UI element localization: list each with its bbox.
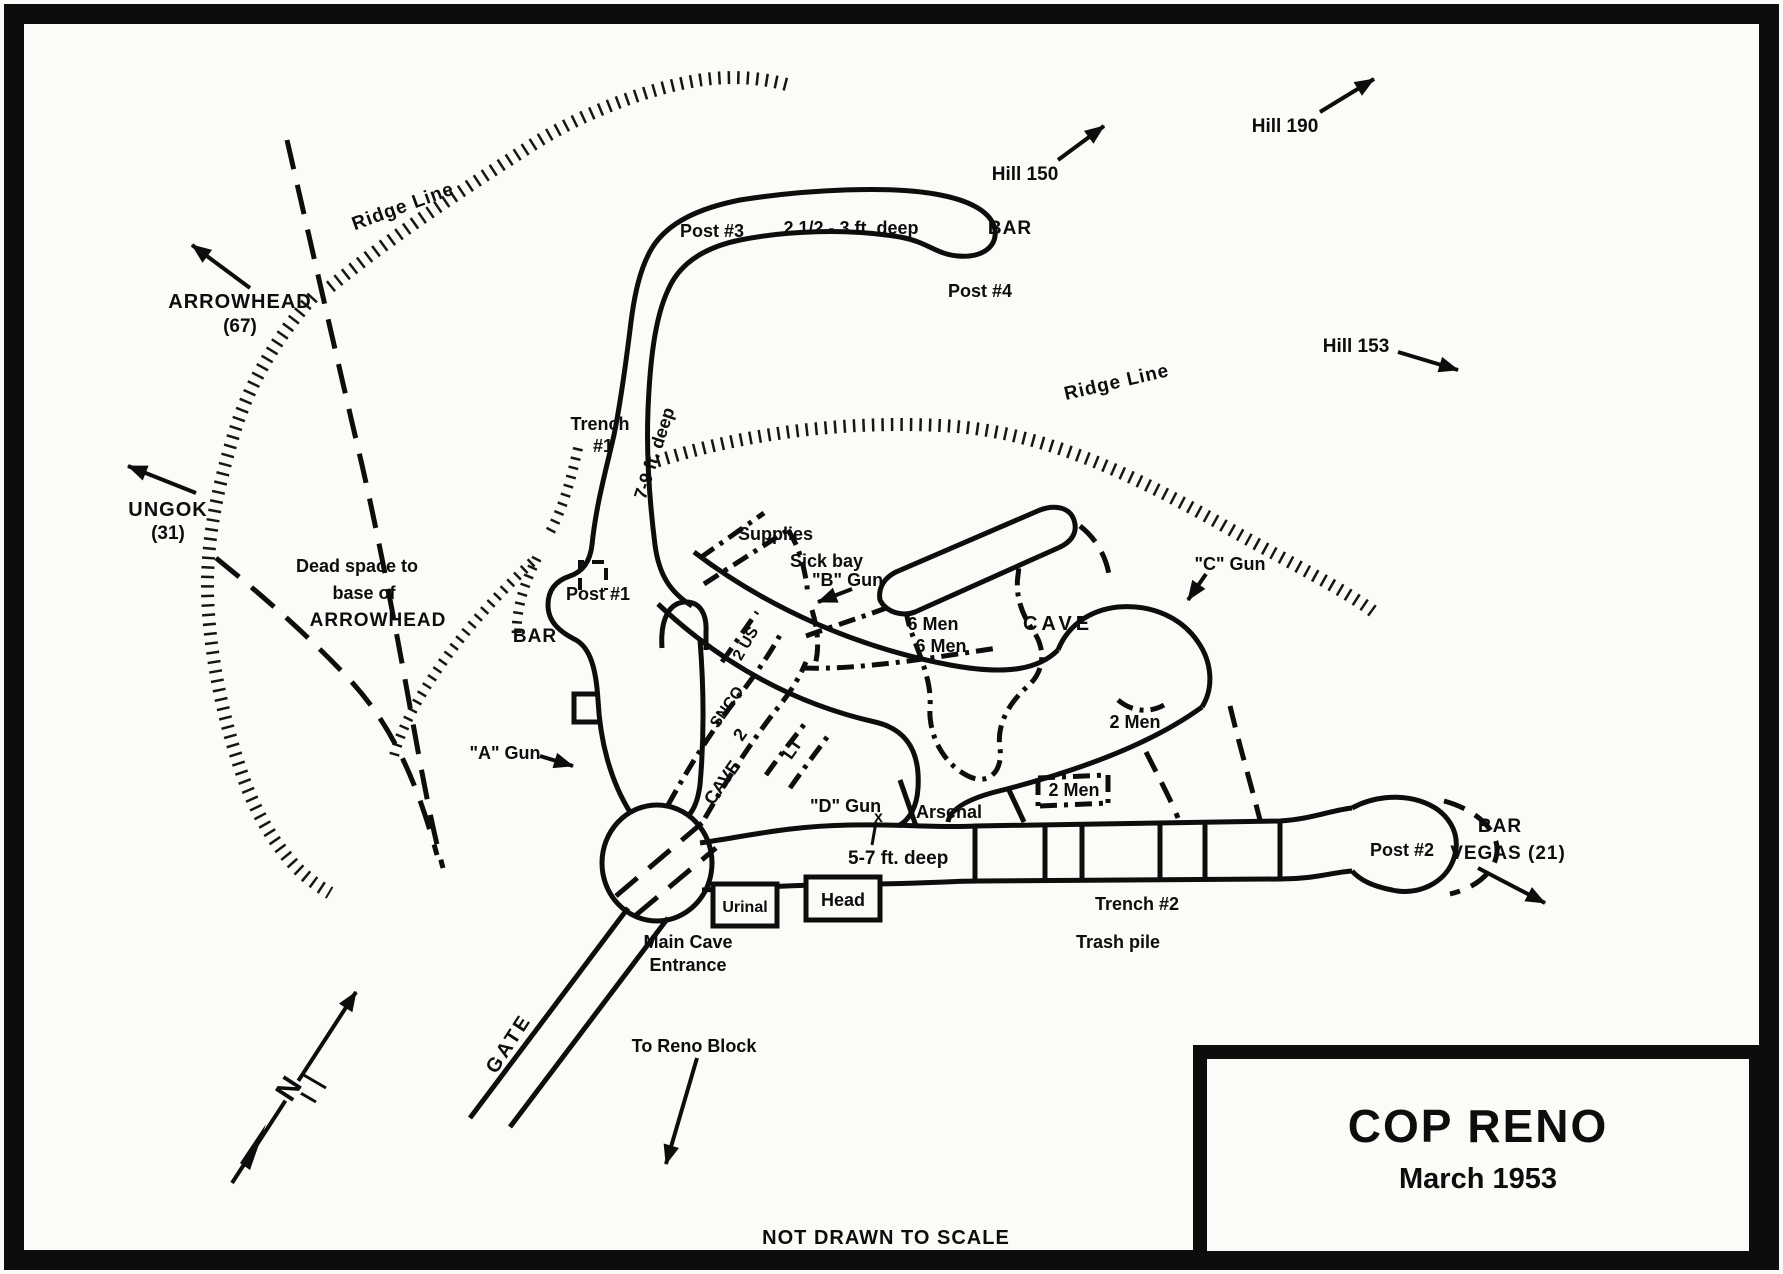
label-snco: SNCO [707,684,747,732]
right-dash-a [1230,706,1260,820]
label-dead-space-2: base of [332,583,396,603]
slope-hachure-b [550,448,578,532]
label-d-gun: "D" Gun [810,796,881,816]
label-cave-tunnel: CAVE [700,757,744,808]
arrow-bar-vegas [1478,868,1545,903]
label-bar-left: BAR [513,626,557,647]
label-urinal: Urinal [722,899,767,916]
right-dash-b [1146,752,1178,818]
label-b-gun: "B" Gun [812,570,883,590]
arrow-a-gun [540,756,573,766]
arsenal-tunnel-b [1008,788,1024,822]
label-dead-space-1: Dead space to [296,556,418,576]
label-main-cave-2: Entrance [649,955,726,975]
label-trash-pile: Trash pile [1076,932,1160,952]
arrow-b-gun [818,589,852,602]
label-lt: LT [778,734,806,762]
right-dash-c [1080,526,1110,582]
arrow-c-gun [1188,574,1206,600]
label-bar-vegas-1: BAR [1478,816,1522,837]
label-two-us: 2 US [730,624,763,664]
label-ungok: UNGOK [128,499,207,521]
label-post2: Post #2 [1370,840,1434,860]
arrow-to-arrowhead [192,245,250,288]
label-post1: Post #1 [566,584,630,604]
label-hill-190: Hill 190 [1252,116,1319,137]
label-post3: Post #3 [680,221,744,241]
title-box [1200,1052,1756,1258]
trench2-dividers [975,821,1280,881]
label-ridge-line-right: Ridge Line [1062,360,1171,405]
entrance-hatch-b [636,848,716,915]
label-main-depth: 5-7 ft. deep [848,848,948,869]
ridge-hachure-left [207,297,330,893]
label-hill-150: Hill 150 [992,164,1059,185]
map-sheet: Ridge Line Ridge Line ARROWHEAD (67) UNG… [0,0,1783,1274]
label-two-men-b: 2 Men [1048,780,1099,800]
label-ridge-line-left: Ridge Line [349,179,457,235]
label-trench1-b: #1 [593,436,613,456]
label-footer: NOT DRAWN TO SCALE [762,1227,1010,1249]
label-arsenal: Arsenal [916,802,982,822]
entrance-hatch-a [616,823,702,896]
arrow-to-reno-block [666,1058,697,1164]
map-title: COP RENO [1348,1100,1609,1152]
label-hill-153: Hill 153 [1323,336,1390,357]
label-a-gun: "A" Gun [469,743,540,763]
label-arrowhead: ARROWHEAD [168,291,311,313]
label-d-gun-x: x [874,809,883,826]
ridge-hachure-top [330,78,792,287]
road-line-a [470,908,628,1118]
label-main-cave-1: Main Cave [643,932,732,952]
trench2-upper [700,808,1352,843]
trench2-lower [702,871,1352,890]
dashed-boundary-a [287,140,443,868]
label-trench1-depth: 7-9 ft. deep [630,405,678,502]
b-gun-tunnel [812,610,818,668]
label-cave-big: CAVE [1023,613,1093,635]
label-trench1-a: Trench [570,414,629,434]
label-bar-vegas-2: VEGAS (21) [1450,843,1566,864]
two-men-arc [1118,700,1164,710]
label-sick-bay: Sick bay [790,551,863,571]
label-cave-tunnel-num: 2 [729,725,751,745]
dashed-boundary-b [216,558,437,855]
a-gun-square [574,694,598,722]
north-arrow-feather [240,1124,266,1170]
arrow-to-hill153 [1398,352,1458,370]
label-to-reno-block: To Reno Block [632,1036,758,1056]
map-subtitle: March 1953 [1399,1163,1557,1195]
label-six-men-a: 6 Men [907,614,958,634]
label-post4: Post #4 [948,281,1012,301]
arrow-to-ungok [128,466,196,493]
label-dead-space-3: ARROWHEAD [310,610,447,631]
label-top-depth: 2 1/2 - 3 ft. deep [783,218,918,238]
spoon-trench [880,507,1076,614]
label-head: Head [821,890,865,910]
cop-reno-sketch-map: Ridge Line Ridge Line ARROWHEAD (67) UNG… [0,0,1783,1274]
trench1-right-lower [688,640,703,816]
arrow-to-hill150 [1058,126,1104,160]
label-ungok-num: (31) [151,523,185,544]
label-supplies: Supplies [738,524,813,544]
arrow-to-hill190 [1320,79,1374,112]
label-trench2: Trench #2 [1095,894,1179,914]
label-six-men-b: 6 Men [915,636,966,656]
label-c-gun: "C" Gun [1194,554,1265,574]
label-two-men-a: 2 Men [1109,712,1160,732]
label-bar-top: BAR [988,218,1032,239]
label-arrowhead-num: (67) [223,316,257,337]
